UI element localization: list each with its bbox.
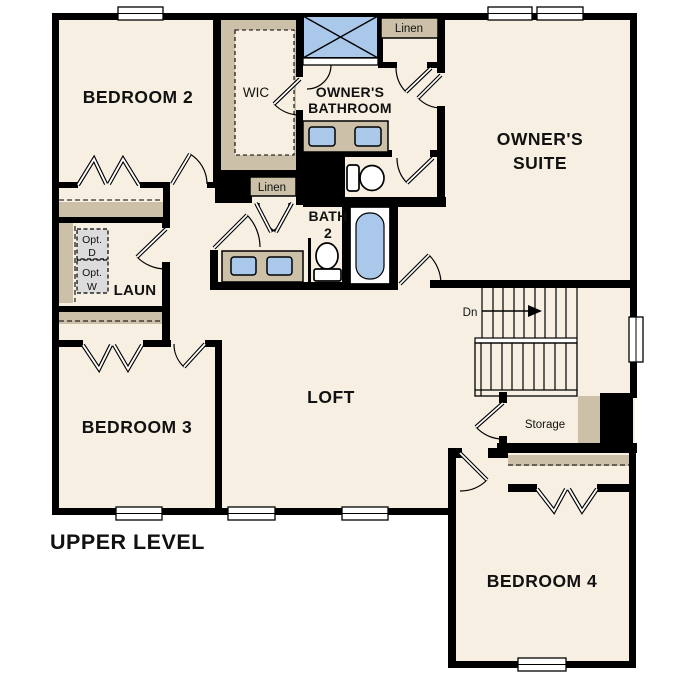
- window-owners-suite-2: [537, 7, 583, 20]
- shower-curb: [303, 58, 378, 65]
- window-bedroom2: [118, 7, 163, 20]
- loft-label: LOFT: [307, 387, 355, 407]
- linen-hall-label: Linen: [258, 182, 286, 194]
- laundry-side-shelf: [59, 223, 73, 303]
- stair-landing-edge: [475, 338, 577, 343]
- window-loft-2: [342, 507, 388, 520]
- sink-icon: [231, 257, 256, 275]
- bath2-label-line1: BATH: [308, 208, 347, 224]
- bedroom2-label: BEDROOM 2: [83, 87, 193, 107]
- opt-dryer-label-line2: D: [88, 247, 96, 259]
- sink-icon: [355, 127, 381, 146]
- owners-bathroom-label-line1: OWNER'S: [316, 84, 384, 100]
- floor-plan-page: BEDROOM 2 OWNER'S SUITE OWNER'S BATHROOM…: [0, 0, 687, 687]
- window-owners-suite-1: [488, 7, 532, 20]
- toilet-icon: [316, 243, 338, 269]
- owners-suite-label-line1: OWNER'S: [497, 129, 583, 149]
- storage-shelf: [578, 396, 600, 443]
- bathtub-icon: [356, 213, 384, 279]
- stairs-down-label: Dn: [463, 307, 478, 319]
- toilet-tank-bath2: [314, 269, 341, 281]
- bedroom4-label: BEDROOM 4: [487, 571, 597, 591]
- toilet-icon: [360, 166, 384, 191]
- bedroom4-closet-shelf: [508, 455, 629, 466]
- wic-label: WIC: [243, 85, 269, 100]
- bedroom4-floor: [452, 451, 632, 665]
- owners-bathroom-label-line2: BATHROOM: [308, 100, 392, 116]
- linen-upper-label: Linen: [395, 23, 423, 35]
- bedroom3-label: BEDROOM 3: [82, 417, 192, 437]
- opt-washer-label-line2: W: [87, 281, 97, 293]
- bedroom2-closet-shelf: [59, 202, 163, 217]
- storage-label: Storage: [525, 419, 565, 431]
- owners-suite-label-line2: SUITE: [513, 153, 567, 173]
- opt-washer-label-line1: Opt.: [82, 267, 102, 279]
- opt-dryer-label-line1: Opt.: [82, 234, 102, 246]
- window-bedroom4: [518, 658, 566, 671]
- bath2-label-line2: 2: [324, 225, 332, 241]
- bedroom3-closet-shelf: [59, 312, 162, 324]
- floor-plan: BEDROOM 2 OWNER'S SUITE OWNER'S BATHROOM…: [0, 0, 687, 687]
- window-loft-1: [228, 507, 275, 520]
- sink-icon: [267, 257, 292, 275]
- toilet-tank-owners: [347, 165, 359, 191]
- sink-icon: [309, 127, 335, 146]
- page-title: UPPER LEVEL: [50, 530, 205, 554]
- laundry-label: LAUN: [114, 282, 157, 299]
- window-bedroom3: [116, 507, 162, 520]
- window-stairwell: [629, 317, 643, 362]
